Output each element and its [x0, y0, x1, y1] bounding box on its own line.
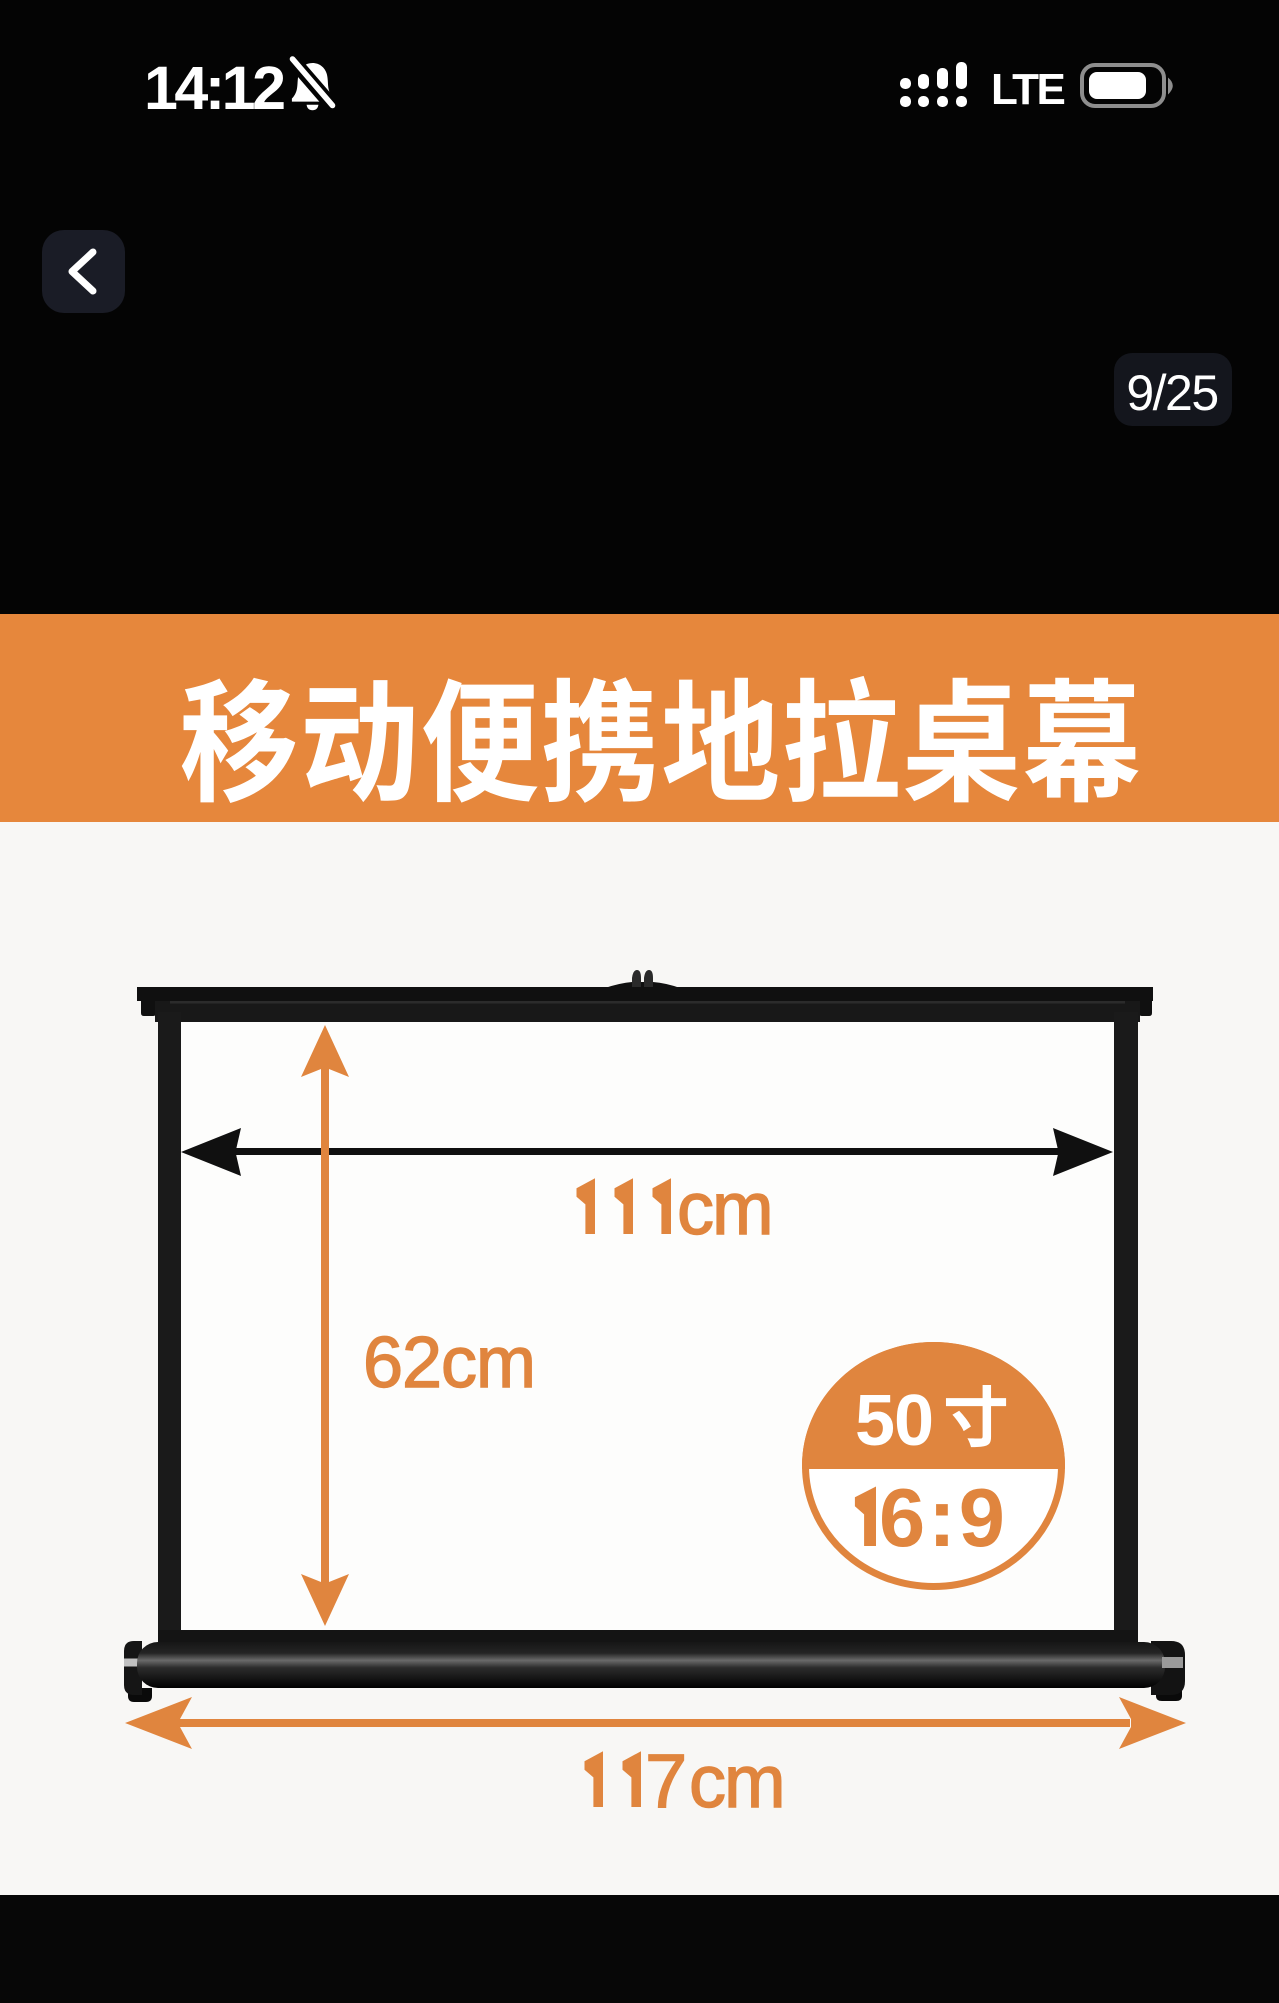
- svg-text:7: 7: [645, 1739, 687, 1824]
- svg-text:50: 50: [855, 1381, 933, 1461]
- svg-text:LTE: LTE: [991, 65, 1064, 114]
- svg-text:14:12: 14:12: [144, 54, 284, 122]
- svg-text:cm: cm: [689, 1740, 784, 1823]
- svg-text:cm: cm: [677, 1167, 772, 1250]
- svg-text:9/25: 9/25: [1126, 365, 1217, 421]
- svg-text:62cm: 62cm: [363, 1323, 535, 1403]
- svg-text:6:9: 6:9: [879, 1471, 1008, 1564]
